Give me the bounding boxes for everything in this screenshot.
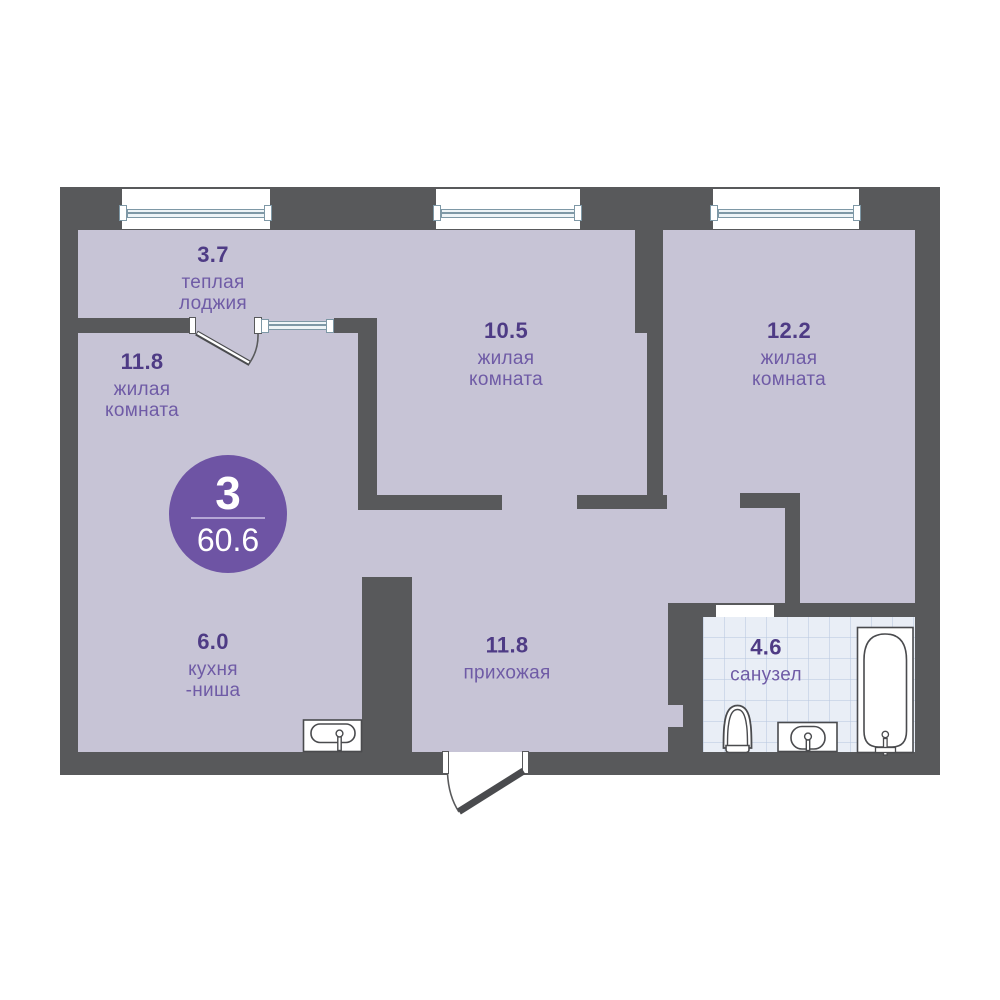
bathroom-area: 4.6 [730, 635, 802, 661]
room-label-living3: 12.2 жилая комната [752, 318, 826, 390]
floor-plan: 3.7 теплая лоджия 11.8 жилая комната 10.… [0, 0, 1000, 1000]
living1-name-line2: комната [105, 400, 179, 421]
washbasin-icon [778, 723, 837, 752]
living3-name-line2: комната [752, 369, 826, 390]
fixtures-layer [0, 0, 1000, 1000]
room-label-hallway: 11.8 прихожая [463, 633, 550, 684]
living1-name-line1: жилая [105, 379, 179, 400]
loggia-name-line2: лоджия [179, 293, 247, 314]
bathtub-icon [858, 628, 914, 756]
bathroom-name: санузел [730, 665, 802, 686]
hallway-area: 11.8 [463, 633, 550, 659]
living3-name-line1: жилая [752, 348, 826, 369]
living2-area: 10.5 [469, 318, 543, 344]
room-label-kitchen: 6.0 кухня -ниша [186, 629, 241, 701]
kitchen-name-line1: кухня [186, 659, 241, 680]
total-area: 60.6 [197, 523, 259, 557]
room-label-bathroom: 4.6 санузел [730, 635, 802, 686]
living2-name-line1: жилая [469, 348, 543, 369]
living3-area: 12.2 [752, 318, 826, 344]
loggia-area: 3.7 [179, 242, 247, 268]
balcony-door-icon [197, 333, 259, 364]
kitchen-sink-icon [304, 720, 362, 752]
rooms-count: 3 [215, 471, 241, 515]
kitchen-name-line2: -ниша [186, 680, 241, 701]
room-label-loggia: 3.7 теплая лоджия [179, 242, 247, 314]
toilet-icon [724, 706, 752, 753]
living2-name-line2: комната [469, 369, 543, 390]
hallway-name: прихожая [463, 663, 550, 684]
kitchen-area: 6.0 [186, 629, 241, 655]
loggia-name-line1: теплая [179, 272, 247, 293]
room-label-living2: 10.5 жилая комната [469, 318, 543, 390]
entrance-door-icon [448, 771, 524, 812]
apartment-summary-badge: 3 60.6 [169, 455, 287, 573]
living1-area: 11.8 [105, 349, 179, 375]
room-label-living1: 11.8 жилая комната [105, 349, 179, 421]
badge-divider [191, 517, 265, 520]
